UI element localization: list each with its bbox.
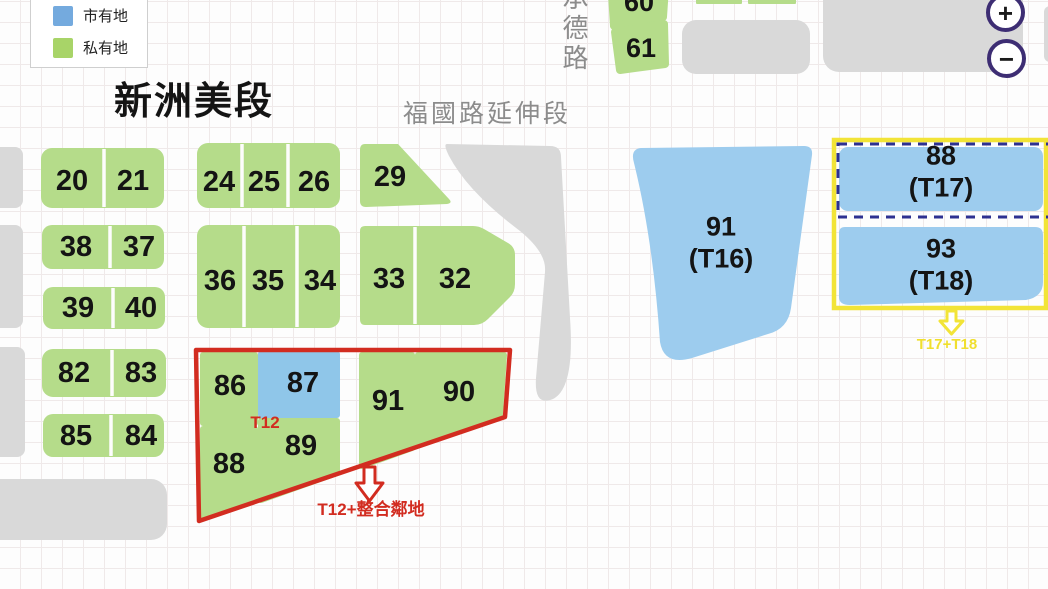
gray-block [1044, 6, 1048, 62]
zoom-out-button[interactable]: − [987, 39, 1026, 78]
parcel-label-20: 20 [56, 166, 88, 196]
gray-block [0, 147, 23, 208]
road-label-fuguo-extension: 福國路延伸段 [403, 101, 571, 127]
parcel-label-40: 40 [125, 293, 157, 323]
map-canvas: 市有地 私有地 新洲美段 福國路延伸段 承德路 60 61 20 21 38 3… [0, 0, 1048, 589]
parcel-label-90: 90 [443, 377, 475, 407]
parcel-label-21: 21 [117, 166, 149, 196]
t12-arrow-label: T12+整合鄰地 [317, 501, 424, 519]
private-land-swatch [53, 38, 73, 58]
legend-item-private-land: 私有地 [53, 37, 147, 58]
parcel-label-25: 25 [248, 167, 280, 197]
legend: 市有地 私有地 [30, 0, 148, 68]
parcel-label-38: 38 [60, 232, 92, 262]
parcel-label-34: 34 [304, 266, 336, 296]
gray-block [0, 479, 167, 540]
parcel-label-84: 84 [125, 421, 157, 451]
legend-label: 私有地 [83, 37, 128, 58]
parcel-label-86: 86 [214, 371, 246, 401]
city-land-swatch [53, 6, 73, 26]
parcel-label-35: 35 [252, 266, 284, 296]
t16-number: 91 [706, 212, 736, 242]
section-title: 新洲美段 [114, 83, 274, 123]
parcel-label-24: 24 [203, 167, 235, 197]
legend-item-city-land: 市有地 [53, 5, 147, 26]
green-strip [749, 0, 795, 3]
green-strip [697, 0, 741, 3]
t17-code: (T17) [909, 173, 974, 203]
parcel-label-85: 85 [60, 421, 92, 451]
parcel-label-32: 32 [439, 264, 471, 294]
gray-block [0, 347, 25, 457]
parcel-label-36: 36 [204, 266, 236, 296]
t17t18-arrow-label: T17+T18 [917, 337, 977, 353]
road-label-chengde: 承德路 [556, 0, 593, 74]
t18-code: (T18) [909, 266, 974, 296]
t12-down-arrow-icon [356, 467, 383, 501]
parcel-label-61: 61 [626, 34, 656, 62]
parcel-label-89: 89 [285, 431, 317, 461]
parcel-label-39: 39 [62, 293, 94, 323]
gray-block [0, 225, 23, 328]
parcel-label-29: 29 [374, 162, 406, 192]
parcel-label-37: 37 [123, 232, 155, 262]
parcel-label-26: 26 [298, 167, 330, 197]
parcel-label-t16: 91 (T16) [689, 211, 754, 276]
parcel-label-87: 87 [287, 368, 319, 398]
parcel-label-t17: 88 (T17) [909, 140, 974, 205]
legend-label: 市有地 [83, 5, 128, 26]
parcel-label-82: 82 [58, 358, 90, 388]
t16-code: (T16) [689, 244, 754, 274]
parcel-label-60: 60 [624, 0, 654, 16]
t12-tag: T12 [250, 414, 279, 432]
parcel-label-33: 33 [373, 264, 405, 294]
gray-block [682, 20, 810, 74]
parcel-label-91: 91 [372, 386, 404, 416]
t18-number: 93 [926, 234, 956, 264]
parcel-label-88: 88 [213, 449, 245, 479]
parcel-label-t18: 93 (T18) [909, 233, 974, 298]
parcel-label-83: 83 [125, 358, 157, 388]
t17-number: 88 [926, 141, 956, 171]
t17t18-down-arrow-icon [940, 311, 963, 334]
